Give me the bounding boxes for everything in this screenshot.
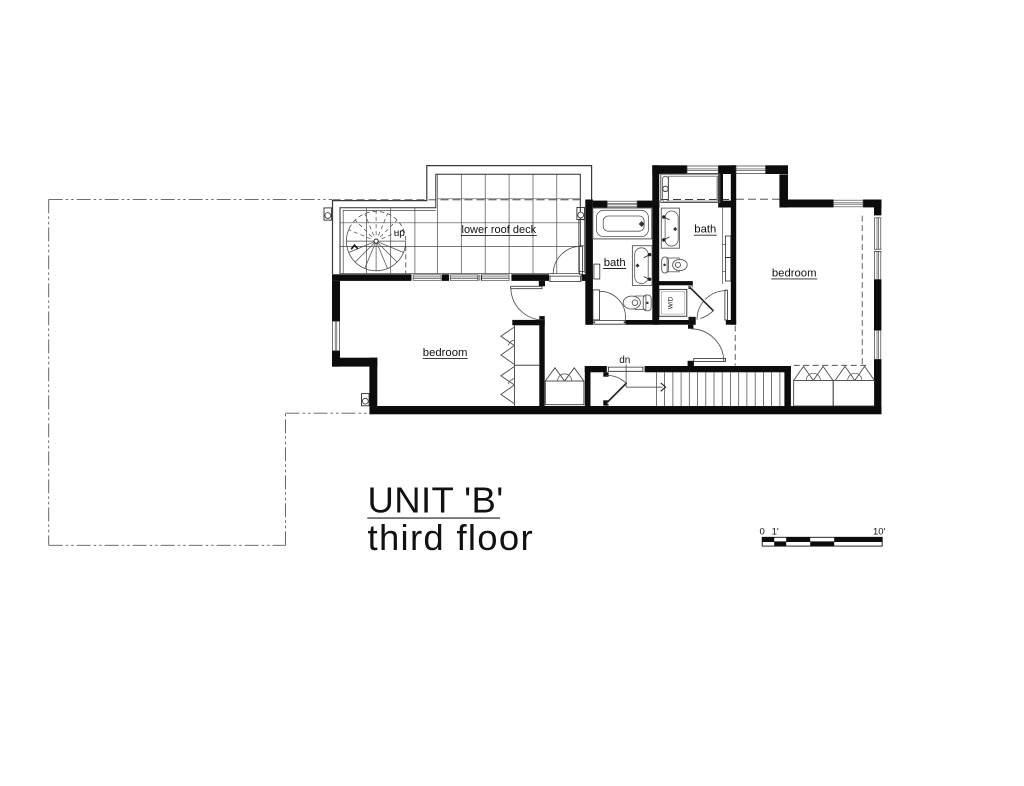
svg-text:UNIT 'B': UNIT 'B'	[368, 480, 504, 521]
svg-text:W/D: W/D	[668, 296, 675, 309]
svg-text:bath: bath	[694, 224, 716, 236]
svg-text:lower roof deck: lower roof deck	[462, 224, 537, 236]
svg-text:bedroom: bedroom	[423, 347, 468, 359]
svg-text:up: up	[394, 228, 406, 239]
svg-text:0: 0	[760, 527, 765, 538]
svg-text:bedroom: bedroom	[772, 267, 817, 279]
svg-text:10': 10'	[873, 527, 886, 538]
svg-text:1': 1'	[772, 527, 779, 538]
svg-text:bath: bath	[604, 257, 626, 269]
svg-text:third floor: third floor	[368, 517, 534, 558]
svg-text:dn: dn	[619, 355, 630, 366]
